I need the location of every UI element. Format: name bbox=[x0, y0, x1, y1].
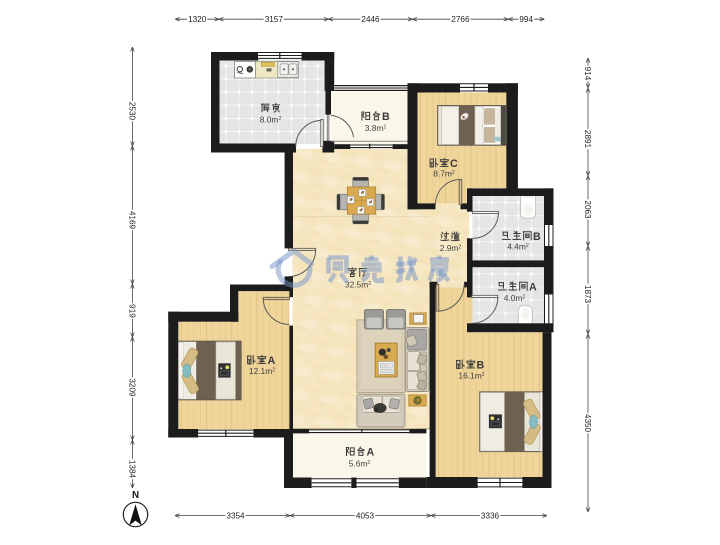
svg-text:1873: 1873 bbox=[583, 285, 592, 304]
svg-text:1320: 1320 bbox=[188, 15, 207, 24]
svg-text:2446: 2446 bbox=[361, 15, 380, 24]
svg-text:3209: 3209 bbox=[128, 378, 137, 397]
svg-text:914: 914 bbox=[583, 67, 592, 81]
svg-text:4.0m2: 4.0m2 bbox=[504, 293, 526, 303]
svg-text:4.4m2: 4.4m2 bbox=[507, 242, 529, 252]
svg-text:2766: 2766 bbox=[451, 15, 470, 24]
svg-text:994: 994 bbox=[519, 15, 533, 24]
svg-text:N: N bbox=[132, 490, 139, 501]
svg-text:B: B bbox=[533, 231, 541, 243]
svg-text:4169: 4169 bbox=[128, 211, 137, 230]
svg-text:2.9m2: 2.9m2 bbox=[440, 243, 462, 253]
svg-text:1384: 1384 bbox=[128, 460, 137, 479]
svg-text:3.8m2: 3.8m2 bbox=[365, 123, 387, 133]
svg-text:8.7m2: 8.7m2 bbox=[433, 169, 455, 179]
svg-text:B: B bbox=[477, 359, 485, 371]
svg-text:A: A bbox=[367, 446, 375, 458]
svg-text:A: A bbox=[529, 281, 537, 293]
svg-text:2530: 2530 bbox=[127, 102, 136, 121]
svg-text:3354: 3354 bbox=[226, 512, 245, 521]
svg-text:B: B bbox=[382, 111, 390, 123]
svg-text:2063: 2063 bbox=[583, 200, 592, 219]
svg-text:2891: 2891 bbox=[583, 130, 592, 149]
svg-text:16.1m2: 16.1m2 bbox=[458, 371, 484, 381]
svg-text:919: 919 bbox=[128, 304, 137, 318]
svg-text:5.6m2: 5.6m2 bbox=[349, 459, 371, 469]
svg-text:3157: 3157 bbox=[265, 15, 284, 24]
svg-text:A: A bbox=[268, 355, 276, 367]
svg-text:3336: 3336 bbox=[481, 512, 500, 521]
svg-text:8.0m2: 8.0m2 bbox=[260, 115, 282, 125]
svg-text:4350: 4350 bbox=[583, 414, 592, 433]
svg-text:32.5m2: 32.5m2 bbox=[345, 280, 371, 290]
svg-text:12.1m2: 12.1m2 bbox=[249, 366, 275, 376]
svg-text:4053: 4053 bbox=[356, 512, 375, 521]
